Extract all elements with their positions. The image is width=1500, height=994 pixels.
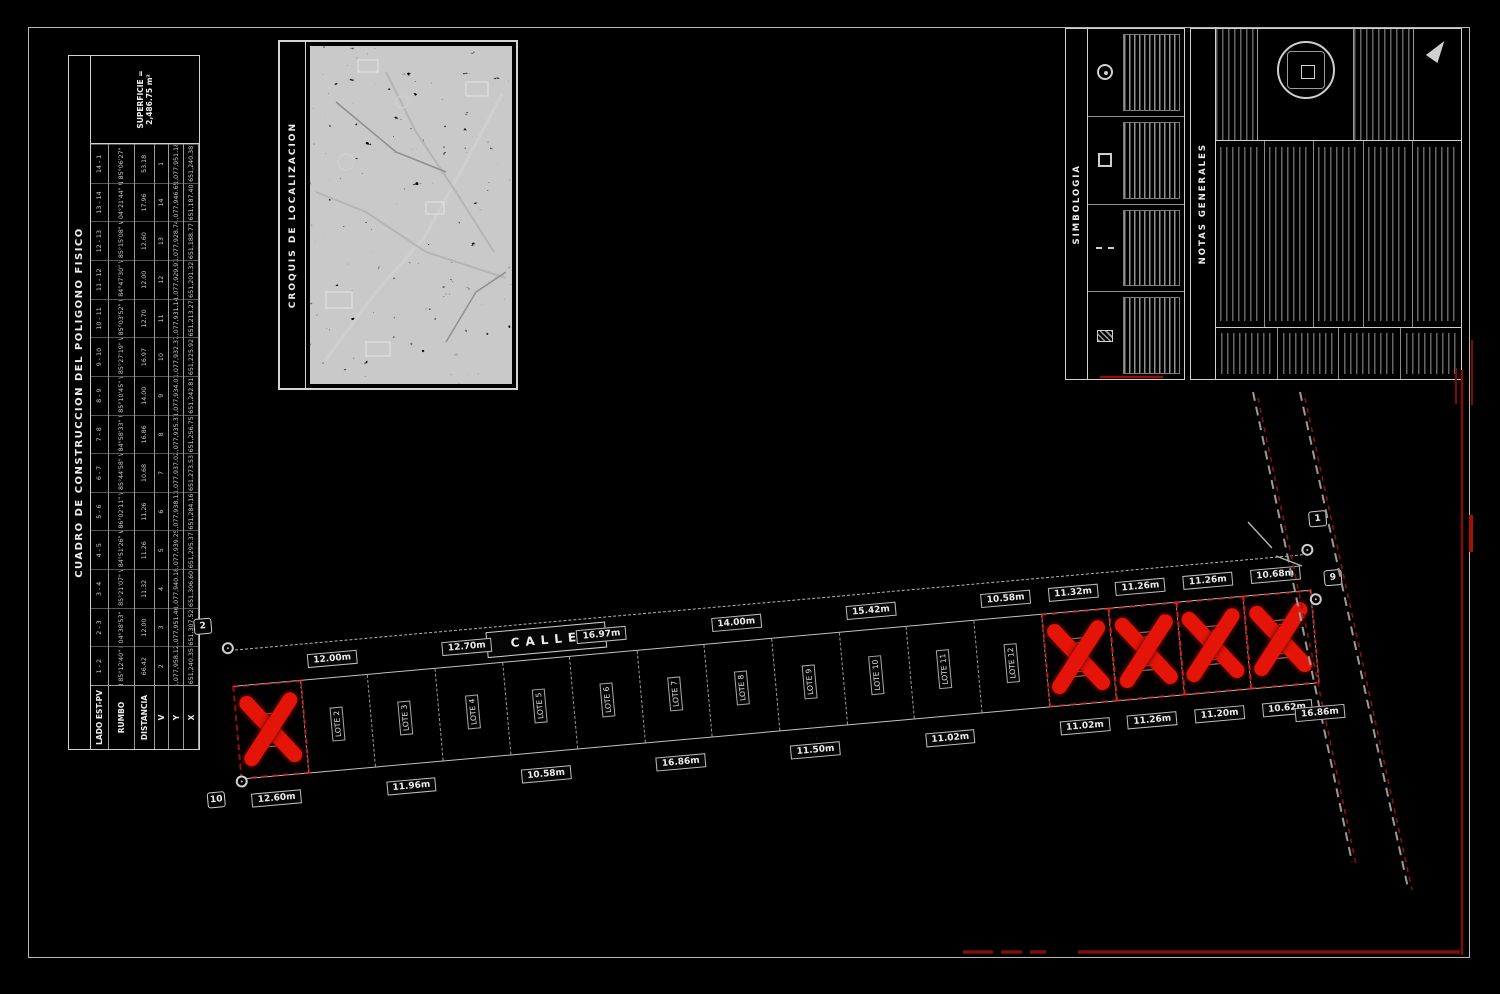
vertex-tag: 2 (193, 618, 212, 636)
map-graphic (306, 42, 516, 388)
table-cell: 66.42 (135, 646, 154, 685)
table-cell: 10 (155, 337, 168, 376)
table-cell: S 84°51'26" W (109, 530, 134, 569)
table-cell: 651,225.92 (184, 337, 198, 376)
table-cell: 12 - 13 (91, 221, 108, 260)
column-header-rumbo: RUMBO (109, 685, 134, 749)
table-series-lado: LADO EST-PV 1 - 22 - 33 - 44 - 55 - 66 -… (91, 144, 109, 749)
legend-title-strip: SIMBOLOGIA (1066, 29, 1088, 379)
notes-paragraph (1314, 141, 1363, 327)
north-cell (1414, 29, 1461, 140)
table-cell: 2 (155, 646, 168, 685)
table-cell: 16.97 (135, 337, 154, 376)
table-cell: 7 - 8 (91, 415, 108, 454)
table-cell: S 85°21'07" W (109, 569, 134, 608)
lot: LOTE 3 11.96m (368, 669, 444, 767)
table-cell: 1,077,928.74 (169, 221, 183, 260)
table-cell: 12.00 (135, 608, 154, 647)
table-cell: 1,077,951.18 (169, 144, 183, 183)
table-cell: 12.70 (135, 299, 154, 338)
location-map-title: CROQUIS DE LOCALIZACION (288, 122, 298, 308)
table-cell: 12.00 (135, 260, 154, 299)
lot: 16.97m LOTE 6 (570, 651, 646, 749)
table-cell: 8 (155, 415, 168, 454)
table-cell: 3 - 4 (91, 569, 108, 608)
column-header-x: X (184, 685, 198, 749)
legend-item-text (1123, 297, 1180, 374)
surface-total: SUPERFICIE = 2,486.75 m² (91, 56, 199, 144)
vertex-tag: 10 (207, 791, 226, 809)
title-block-cell (1401, 328, 1462, 379)
column-header-v: V (155, 685, 168, 749)
title-block-bottom-row (1216, 327, 1461, 379)
table-cell: 16.86 (135, 415, 154, 454)
table-cell: 651,213.27 (184, 299, 198, 338)
lot-label: LOTE 6 (599, 682, 615, 717)
title-block-cell (1339, 328, 1401, 379)
construction-table: CUADRO DE CONSTRUCCION DEL POLIGONO FISI… (68, 55, 200, 750)
table-cell: 651,273.53 (184, 453, 198, 492)
notes-paragraph (1265, 141, 1314, 327)
table-cell: 1,077,939.25 (169, 530, 183, 569)
lot: LOTE 5 10.58m (503, 657, 579, 755)
table-cell: 651,240.38 (184, 144, 198, 183)
lot-label: LOTE 2 (330, 706, 346, 741)
table-cell: 1,077,940.18 (169, 569, 183, 608)
table-cell: N 85°12'40" E (109, 646, 134, 685)
table-cell: S 85°15'08" W (109, 221, 134, 260)
lot: 11.32m LOTE 13 11.02m (1042, 609, 1118, 707)
table-cell: 12 (155, 260, 168, 299)
vertex-tag: 1 (1308, 510, 1327, 528)
table-cell: 14 - 1 (91, 144, 108, 183)
notes-title-strip: NOTAS GENERALES (1191, 29, 1216, 379)
table-cell: 651,256.75 (184, 415, 198, 454)
table-cell: 1,077,938.11 (169, 492, 183, 531)
column-header-distancia: DISTANCIA (135, 685, 154, 749)
table-cell: 13 - 14 (91, 183, 108, 222)
boundary-square-icon (1092, 122, 1118, 199)
table-cell: 4 - 5 (91, 530, 108, 569)
table-cell: S 85°03'52" W (109, 299, 134, 338)
table-cell: 651,188.77 (184, 221, 198, 260)
title-block-cell (1278, 328, 1340, 379)
table-cell: 651,306.60 (184, 569, 198, 608)
table-cell: S 86°02'11" W (109, 492, 134, 531)
table-cell: 651,295.37 (184, 530, 198, 569)
column-header-y: Y (169, 685, 183, 749)
table-cell: 11.26 (135, 492, 154, 531)
table-cell: 9 - 10 (91, 337, 108, 376)
title-block-cell (1216, 29, 1258, 140)
table-cell: 14.00 (135, 376, 154, 415)
table-cell: 11.32 (135, 569, 154, 608)
lot-label: LOTE 8 (734, 670, 750, 705)
title-block-panel: NOTAS GENERALES (1190, 28, 1462, 380)
table-cell: 651,187.40 (184, 183, 198, 222)
lot: LOTE 9 11.50m (772, 633, 848, 731)
column-header-lado: LADO EST-PV (91, 685, 108, 749)
title-block-cell (1216, 328, 1278, 379)
table-cell: 53.18 (135, 144, 154, 183)
lot: LOTE 11 11.02m (907, 621, 983, 719)
small-text-block (1216, 29, 1257, 140)
notes-title: NOTAS GENERALES (1198, 143, 1208, 264)
notes-paragraph (1413, 141, 1461, 327)
lot-label: LOTE 11 (936, 650, 952, 690)
table-cell: N 04°21'44" W (109, 183, 134, 222)
table-series-distancia: DISTANCIA 66.4212.0011.3211.2611.2610.68… (135, 144, 155, 749)
lot-label: LOTE 7 (667, 676, 683, 711)
table-cell: 10.68 (135, 453, 154, 492)
municipal-seal-icon (1277, 41, 1335, 99)
table-cell: 1,077,935.37 (169, 415, 183, 454)
table-cell: 1,077,932.37 (169, 337, 183, 376)
construction-table-rotated: CUADRO DE CONSTRUCCION DEL POLIGONO FISI… (68, 55, 200, 750)
table-cell: 651,240.35 (184, 646, 198, 685)
legend-item-text (1123, 210, 1180, 287)
table-cell: 1,077,937.02 (169, 453, 183, 492)
table-cell: N 85°06'27" E (109, 144, 134, 183)
table-cell: 4 (155, 569, 168, 608)
table-cell: 1,077,951.46 (169, 608, 183, 647)
table-cell: 1,077,934.01 (169, 376, 183, 415)
notes-paragraph (1216, 141, 1265, 327)
table-cell: 7 (155, 453, 168, 492)
table-series-x: X 651,240.35651,307.52651,306.60651,295.… (184, 144, 199, 749)
table-cell: 14 (155, 183, 168, 222)
lot: 15.42m LOTE 10 (840, 627, 916, 725)
notes-paragraph (1364, 141, 1413, 327)
notes-body (1216, 29, 1461, 379)
lot-label: LOTE 9 (801, 664, 817, 699)
vertex-circle-icon (1092, 34, 1118, 111)
lot-label: LOTE 3 (397, 700, 413, 735)
table-cell: 651,201.32 (184, 260, 198, 299)
lot-label: LOTE 12 (1003, 644, 1019, 684)
plan-sheet: { "sheet": {"bg":"#000000","frame_color"… (0, 0, 1500, 994)
north-arrow-icon (1425, 37, 1449, 63)
legend-item (1088, 117, 1184, 205)
lot: 12.70m LOTE 4 (435, 663, 511, 761)
title-block-top-row (1216, 29, 1461, 141)
table-cell: 9 (155, 376, 168, 415)
construction-table-title: CUADRO DE CONSTRUCCION DEL POLIGONO FISI… (69, 56, 91, 749)
legend-items (1088, 29, 1184, 379)
legend-item-text (1123, 122, 1180, 199)
limit-dash-line-icon (1092, 210, 1118, 287)
table-cell: 5 (155, 530, 168, 569)
legend-panel: SIMBOLOGIA (1065, 28, 1185, 380)
legend-title: SIMBOLOGIA (1072, 164, 1082, 245)
table-cell: S 04°38'53" E (109, 608, 134, 647)
table-cell: 1,077,929.97 (169, 260, 183, 299)
lot: 12.00m LOTE 2 (301, 675, 377, 773)
table-cell: 11.26 (135, 530, 154, 569)
location-map (306, 42, 516, 388)
lot: 10.58m LOTE 12 (974, 615, 1050, 713)
table-cell: 1,077,931.14 (169, 299, 183, 338)
table-cell: S 84°47'30" W (109, 260, 134, 299)
table-cell: 11 (155, 299, 168, 338)
location-map-title-strip: CROQUIS DE LOCALIZACION (280, 42, 306, 388)
table-cell: 1,077,958.12 (169, 646, 183, 685)
title-block-cell (1354, 29, 1414, 140)
table-series-v: V 2345678910111213141 (155, 144, 169, 749)
table-cell: 5 - 6 (91, 492, 108, 531)
notes-paragraph-columns (1216, 141, 1461, 327)
seal-cell (1258, 29, 1354, 140)
table-cell: 651,284.16 (184, 492, 198, 531)
table-cell: 10 - 11 (91, 299, 108, 338)
location-map-panel: CROQUIS DE LOCALIZACION (278, 40, 518, 390)
table-series-rumbo: RUMBO N 85°12'40" ES 04°38'53" ES 85°21'… (109, 144, 135, 749)
lot: LOTE 1 12.60m (233, 681, 309, 779)
legend-item-text (1123, 34, 1180, 111)
table-cell: 8 - 9 (91, 376, 108, 415)
lot: 14.00m LOTE 8 (705, 639, 781, 737)
table-cell: 1 - 2 (91, 646, 108, 685)
lot-label: LOTE 5 (532, 688, 548, 723)
legend-item (1088, 205, 1184, 293)
lot: 11.26m LOTE 15 11.20m (1176, 597, 1252, 695)
legend-item (1088, 29, 1184, 117)
table-series-y: Y 1,077,958.121,077,951.461,077,940.181,… (169, 144, 184, 749)
table-cell: 2 - 3 (91, 608, 108, 647)
lot: 11.26m LOTE 14 11.26m (1109, 603, 1185, 701)
table-cell: 6 (155, 492, 168, 531)
legend-item (1088, 292, 1184, 379)
table-cell: S 85°27'19" W (109, 337, 134, 376)
table-cell: 1,077,946.65 (169, 183, 183, 222)
table-cell: S 85°10'45" W (109, 376, 134, 415)
table-cell: 17.96 (135, 183, 154, 222)
small-text-block (1354, 29, 1413, 140)
table-cell: 11 - 12 (91, 260, 108, 299)
lot: 10.68m LOTE 16 10.62m (1244, 591, 1320, 689)
construction-hatch-icon (1092, 297, 1118, 374)
table-cell: S 84°58'33" W (109, 415, 134, 454)
table-cell: 12.60 (135, 221, 154, 260)
table-cell: 6 - 7 (91, 453, 108, 492)
table-cell: 13 (155, 221, 168, 260)
lot-label: LOTE 4 (465, 694, 481, 729)
vertex-tag: 9 (1323, 569, 1342, 587)
table-cell: 3 (155, 608, 168, 647)
lot-label: LOTE 10 (869, 656, 885, 696)
table-cell: S 85°44'58" W (109, 453, 134, 492)
table-cell: 1 (155, 144, 168, 183)
lot: LOTE 7 16.86m (637, 645, 713, 743)
table-cell: 651,242.81 (184, 376, 198, 415)
